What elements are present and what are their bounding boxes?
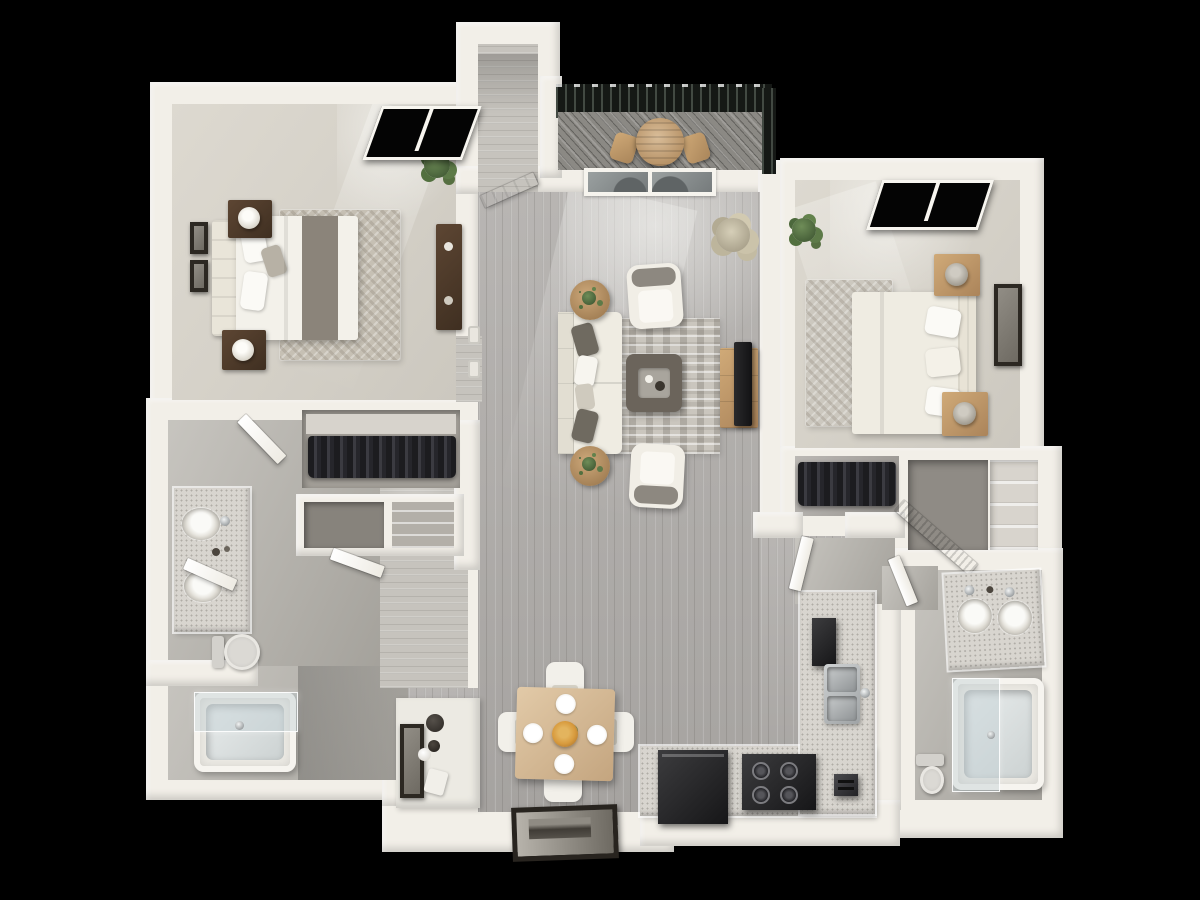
sliding-door-frame: [584, 168, 716, 196]
bath2-tub-handle: [987, 731, 995, 739]
burner-1: [752, 762, 770, 780]
kitchen-sink-basin-1: [827, 667, 857, 692]
bedroom2-nightstand-1: [934, 254, 980, 296]
dining-table: [515, 687, 615, 782]
armchair-top-seat: [638, 289, 674, 323]
toaster: [834, 774, 858, 796]
side-table-top: [570, 280, 610, 320]
bed2-pillow-2: [925, 346, 962, 377]
leaning-wall-art: [511, 804, 619, 862]
place-setting-north: [556, 694, 577, 715]
coffee-table-tray: [638, 368, 670, 398]
kitchen-faucet: [860, 688, 870, 698]
pergola-glints: [556, 84, 772, 87]
sofa-pillow-4: [570, 408, 599, 444]
armchair-bottom-back: [634, 485, 679, 505]
nightstand2-lamp: [232, 339, 254, 361]
dresser-decor-2: [444, 296, 453, 305]
bath1-tub-faucet: [235, 721, 244, 730]
burner-2: [780, 762, 798, 780]
kitchen-sink: [824, 664, 860, 724]
bath1-glass-door: [194, 692, 298, 732]
kitchen-sink-basin-2: [827, 696, 857, 721]
sofa: [558, 312, 622, 454]
sliding-door-pane-1: [588, 172, 648, 192]
bath1-faucet-1: [220, 516, 230, 526]
bath2-sink-2: [997, 600, 1033, 636]
bath2-sink-1: [957, 598, 993, 634]
entry-shadow: [478, 54, 538, 114]
refrigerator: [658, 750, 728, 824]
side-table-bottom: [570, 446, 610, 486]
light-switch-1: [468, 326, 480, 344]
bedroom1-nightstand-2: [222, 330, 266, 370]
closet1-hanging-clothes: [308, 436, 456, 478]
range: [742, 754, 816, 810]
balcony-right-railing: [762, 88, 776, 174]
bed1-fold: [284, 216, 288, 340]
bedroom1-dresser: [436, 224, 462, 330]
balcony-table: [636, 118, 684, 166]
dresser-decor-1: [444, 242, 453, 251]
side-table-top-plant: [582, 291, 596, 305]
sofa-pillow-1: [570, 322, 600, 359]
closet3-interior: [908, 460, 988, 550]
bath1-accessory-1: [212, 548, 220, 556]
bath2-accessory: [986, 586, 993, 593]
bedroom1-wall-art-2: [190, 260, 208, 292]
refrigerator-highlight: [662, 754, 724, 757]
armchair-bottom: [628, 443, 685, 510]
armchair-top-back: [631, 267, 676, 288]
bedroom1-nightstand-1: [228, 200, 272, 238]
bath2-toilet-tank: [916, 754, 944, 766]
closet2-hanging-clothes: [798, 462, 896, 506]
nook-bowl: [426, 714, 444, 732]
bedroom1-wall-art-1: [190, 222, 208, 254]
nightstand4-lamp: [953, 402, 976, 425]
light-switch-2: [468, 360, 480, 378]
place-setting-south: [554, 754, 575, 775]
armchair-bottom-seat: [640, 451, 676, 485]
coffee-table-cup-1: [645, 375, 653, 383]
side-table-bottom-plant: [582, 457, 596, 471]
flower-centerpiece: [552, 721, 579, 748]
bath1-toilet-tank: [212, 636, 224, 668]
tv: [734, 342, 752, 426]
living-dried-plant: [716, 218, 750, 252]
bath2-toilet-bowl: [920, 766, 944, 794]
burner-3: [752, 786, 770, 804]
closet-row-bottom-wall-a: [753, 512, 803, 538]
bath2-faucet-2: [1004, 587, 1015, 598]
window2-mullion: [924, 183, 940, 221]
coffee-table: [626, 354, 682, 412]
bathroom2-vanity: [944, 570, 1045, 671]
burner-4: [780, 786, 798, 804]
nook-mug: [418, 748, 431, 761]
nook-object: [423, 768, 449, 796]
bed2-pillow-1: [924, 305, 962, 338]
cubby-dark: [304, 502, 384, 548]
bath2-faucet-1: [964, 585, 975, 596]
bath1-sink-1: [182, 508, 220, 540]
bed2-fold: [880, 292, 884, 434]
bathroom1-vanity: [174, 488, 250, 632]
nightstand3-lamp: [945, 263, 968, 286]
bedroom2-nightstand-2: [942, 392, 988, 436]
bed1-pillow-2: [239, 271, 268, 312]
nook-counter: [396, 698, 480, 808]
cubby-shelves: [392, 502, 454, 548]
bath2-glass-panel: [952, 678, 1000, 792]
bedroom1-window: [362, 106, 482, 160]
closet-row-bottom-wall-b: [845, 512, 905, 538]
bed1-runner: [302, 216, 338, 340]
floorplan-render: [0, 0, 1200, 900]
closet1-shelf: [306, 414, 456, 434]
linen-closet-shelves: [990, 460, 1038, 550]
bath1-accessory-2: [224, 546, 230, 552]
place-setting-east: [587, 725, 608, 746]
bedroom2-plant: [792, 218, 816, 242]
sofa-pillow-3: [574, 383, 595, 411]
bath1-toilet-bowl: [224, 634, 260, 670]
window1-mullion: [414, 109, 433, 151]
place-setting-west: [523, 723, 544, 744]
coffee-table-cup-2: [655, 381, 665, 391]
entry-floor: [478, 44, 538, 194]
sliding-door-pane-2: [652, 172, 712, 192]
kitchen-built-in: [812, 618, 836, 666]
bedroom2-window: [866, 180, 994, 230]
toaster-slots: [838, 780, 854, 790]
leaning-art-photo: [528, 817, 591, 839]
bedroom2-wall-art: [994, 284, 1022, 366]
armchair-top: [626, 262, 684, 330]
nightstand1-lamp: [238, 207, 260, 229]
nook-picture-frames: [400, 724, 424, 798]
